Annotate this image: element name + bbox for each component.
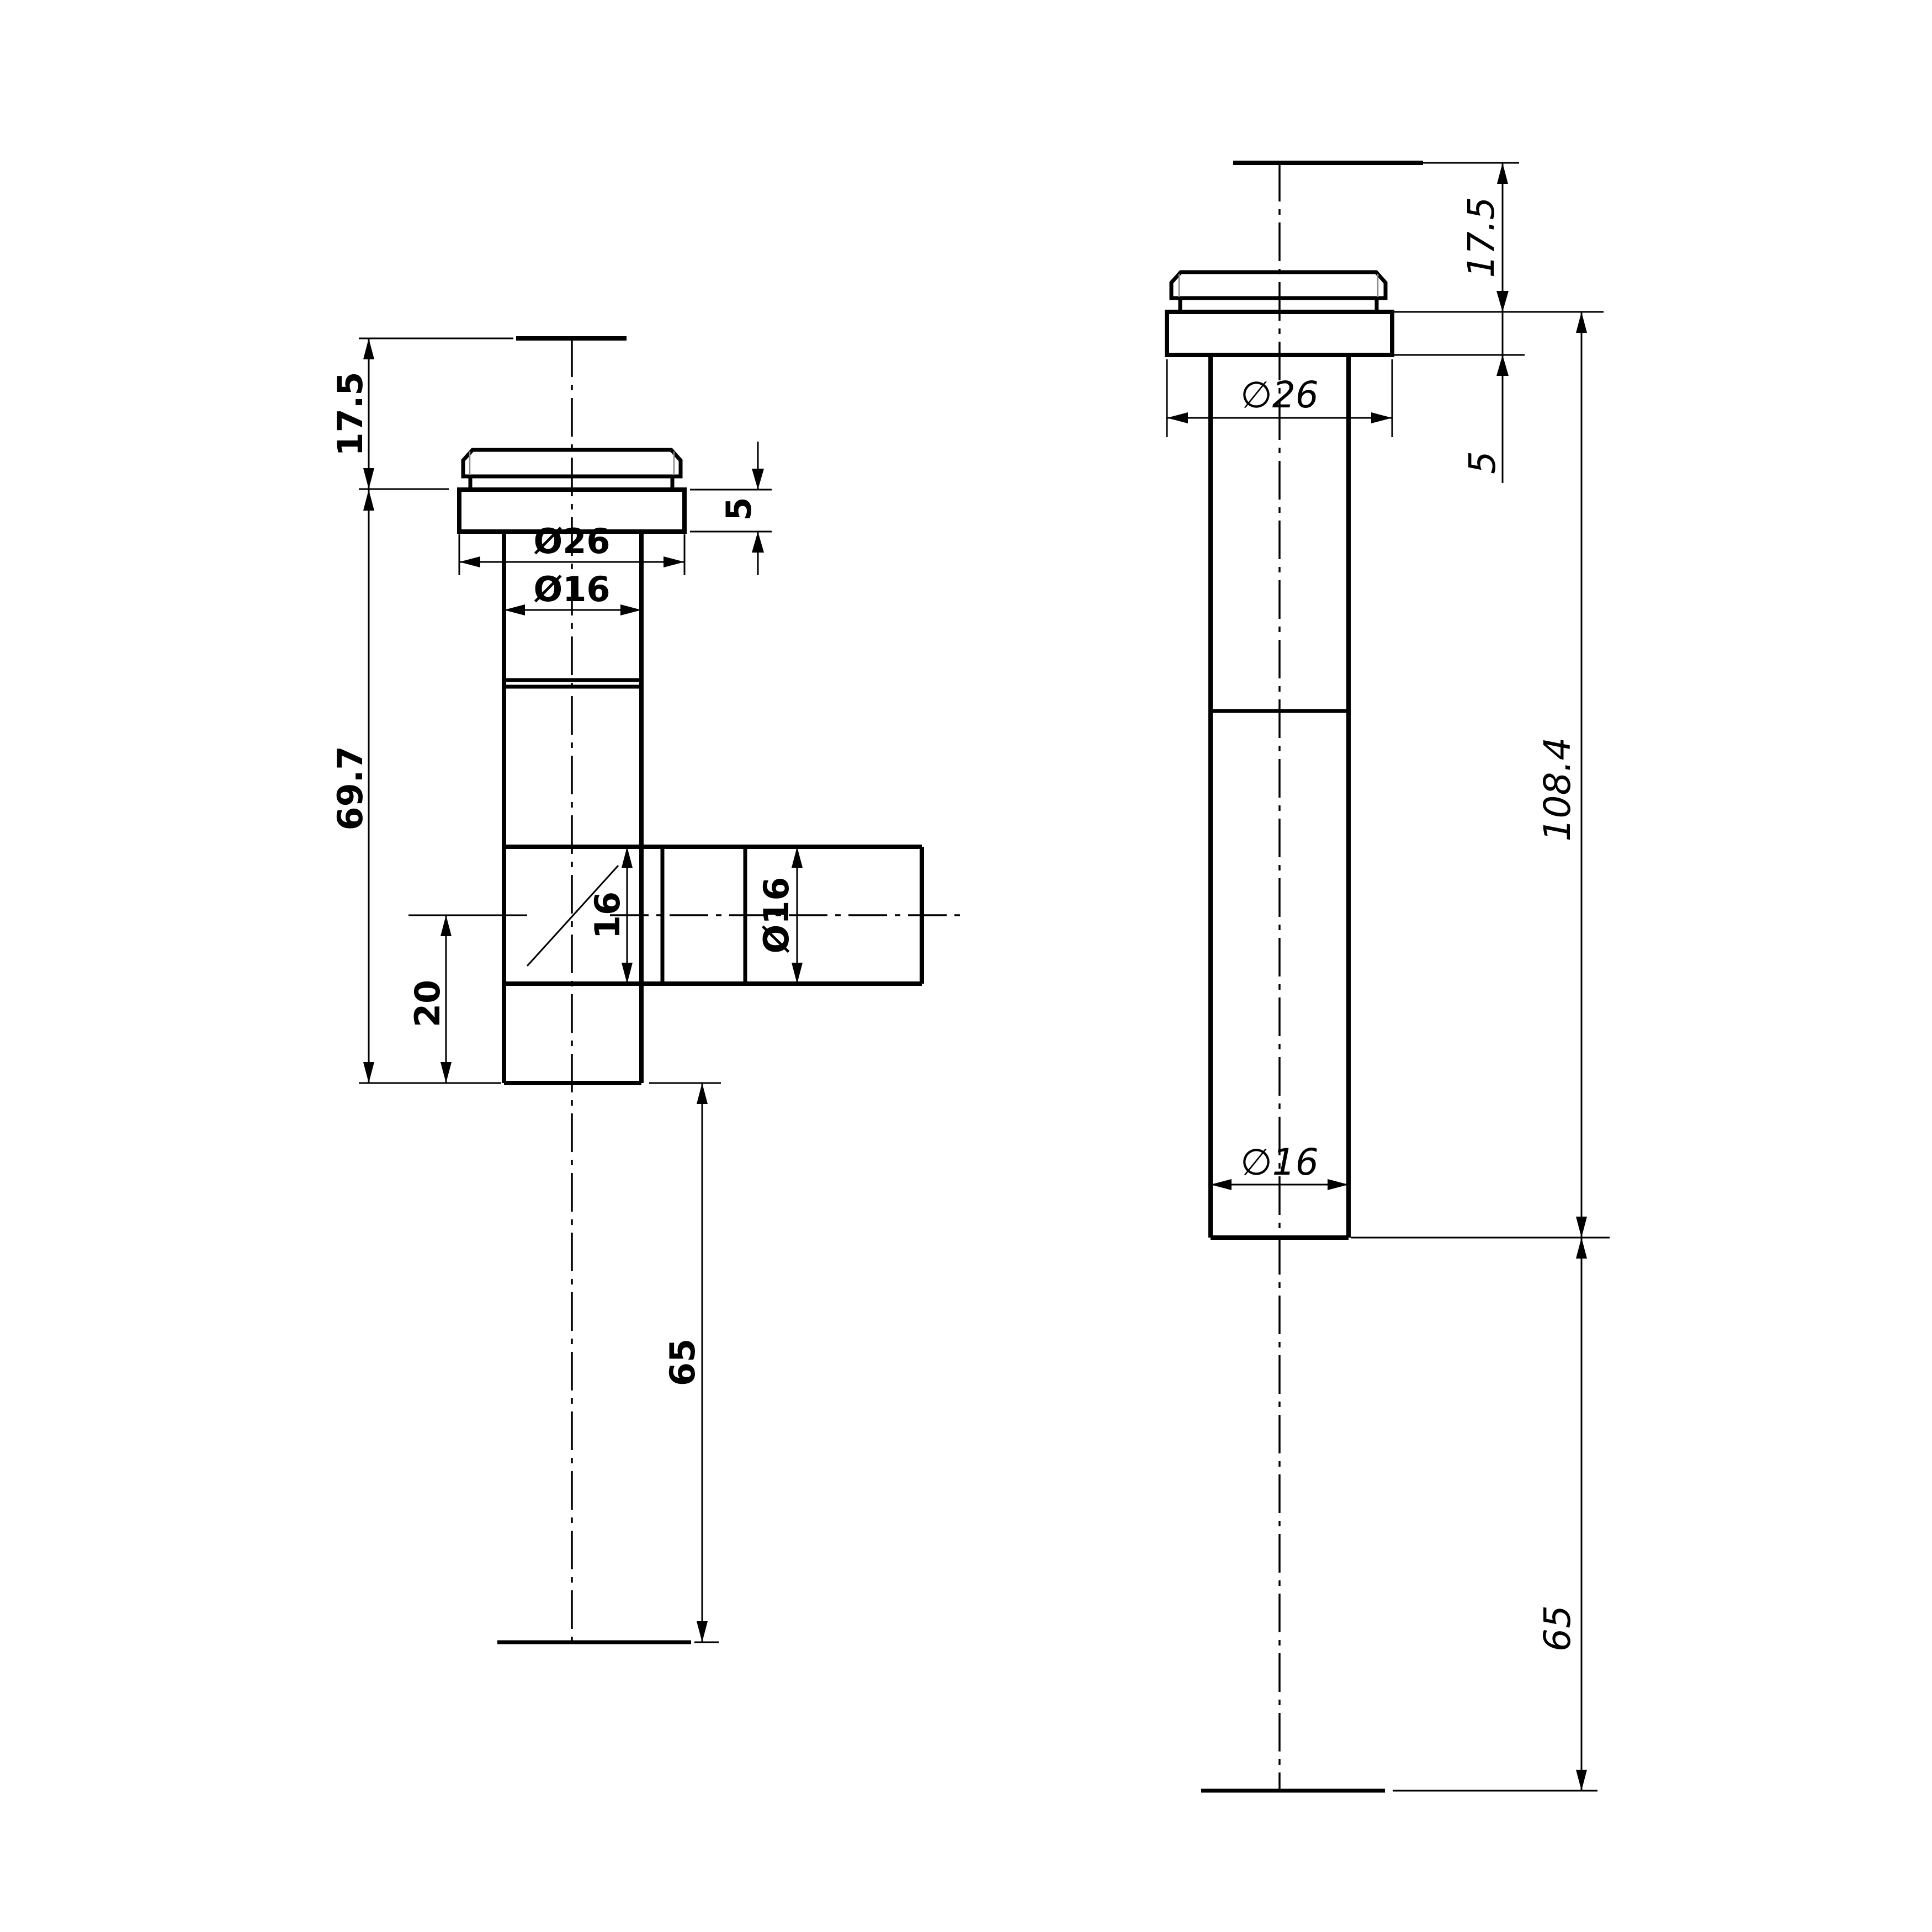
right-dim-tail-length-label: 65	[1536, 1605, 1579, 1652]
right-dim-flange-diameter-label: ∅26	[1240, 374, 1318, 416]
left-dim-shaft-diameter-label: Ø16	[534, 569, 611, 609]
right-dim-flange-thickness-label: 5	[1461, 451, 1504, 474]
left-dim-branch-width-label: 16	[587, 891, 628, 939]
drawing-canvas: 17.5 69.7 5 Ø26 Ø16	[0, 0, 1932, 1932]
left-dim-branch-offset-label: 20	[407, 980, 448, 1027]
left-dim-tail-length-label: 65	[662, 1339, 703, 1386]
left-dim-branch-diameter-label: Ø16	[756, 877, 797, 954]
left-dim-flange-diameter-label: Ø26	[534, 521, 611, 561]
left-dim-top-height-label: 17.5	[330, 372, 370, 457]
right-dim-shaft-diameter-label: ∅16	[1240, 1141, 1318, 1183]
left-dim-body-length-label: 69.7	[330, 746, 370, 831]
left-dim-flange-thickness-label: 5	[719, 497, 759, 521]
right-dim-top-height-label: 17.5	[1460, 197, 1503, 278]
right-dim-total-length-label: 108.4	[1536, 737, 1579, 842]
background	[0, 0, 1932, 1932]
